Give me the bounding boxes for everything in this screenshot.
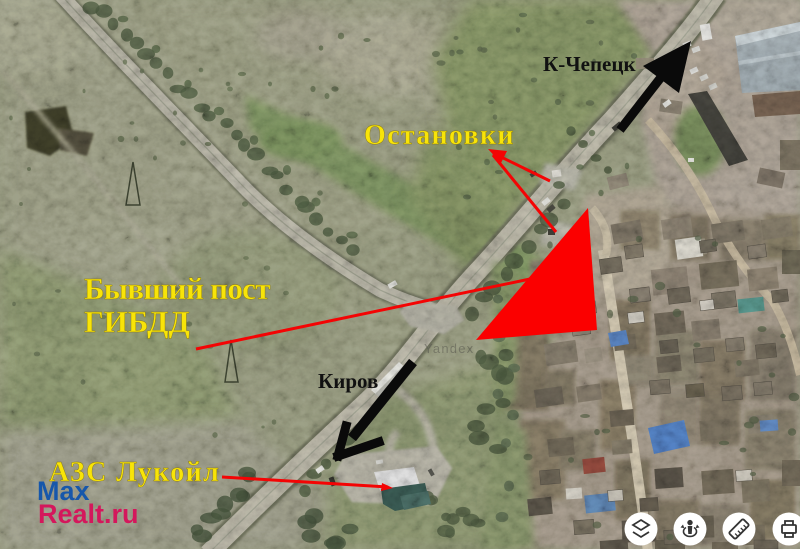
svg-text:ГИБДД: ГИБДД bbox=[84, 304, 190, 339]
svg-text:К-Чепецк: К-Чепецк bbox=[543, 52, 636, 76]
svg-text:Остановки: Остановки bbox=[364, 120, 515, 151]
svg-text:Бывший пост: Бывший пост bbox=[84, 271, 270, 306]
svg-text:Киров: Киров bbox=[318, 369, 378, 393]
svg-text:Realt.ru: Realt.ru bbox=[38, 499, 139, 529]
